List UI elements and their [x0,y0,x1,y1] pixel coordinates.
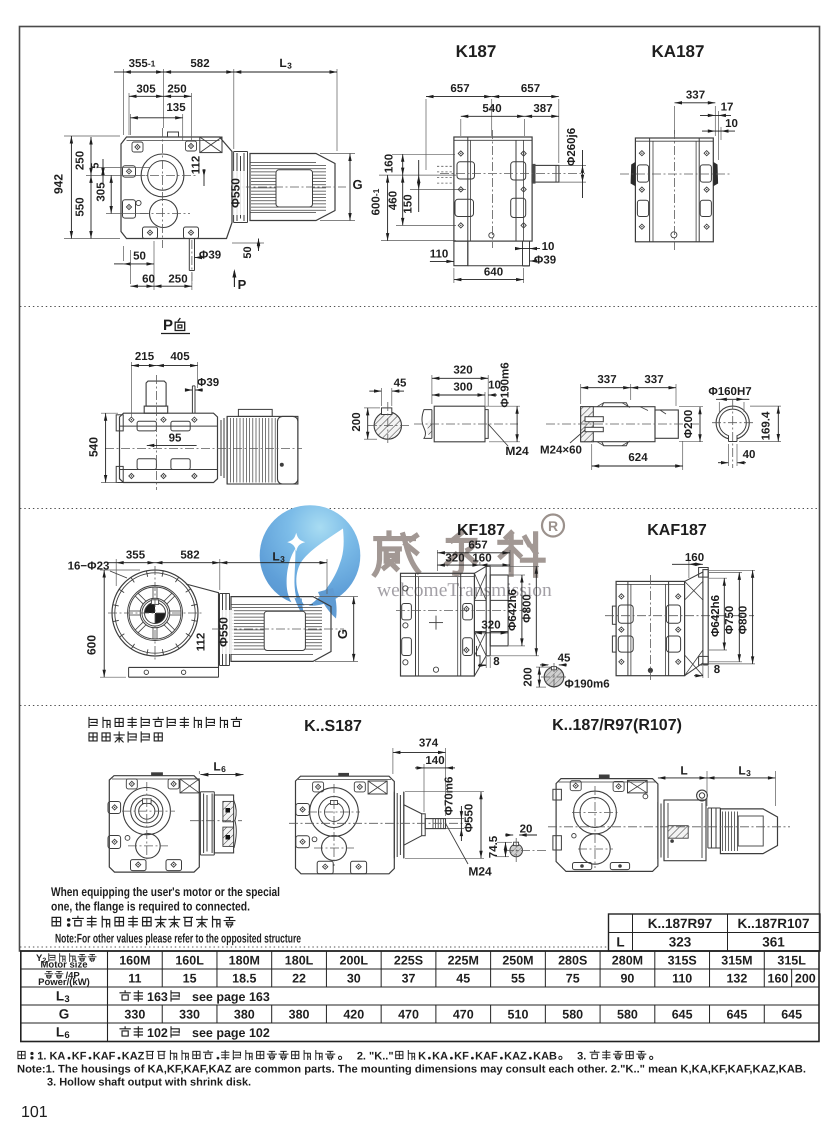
svg-text:11: 11 [128,972,141,986]
svg-text:see page 102: see page 102 [192,1026,270,1040]
svg-text:102: 102 [147,1026,168,1040]
svg-text:8: 8 [714,664,721,676]
svg-text:KAF187: KAF187 [647,522,707,539]
svg-text:Power/(kW): Power/(kW) [38,977,90,988]
svg-text:215: 215 [135,351,155,363]
svg-text:657: 657 [468,540,487,552]
svg-text:K187: K187 [456,42,497,61]
svg-text:135: 135 [166,102,186,114]
svg-text:Φ39: Φ39 [197,377,219,389]
svg-text:200: 200 [351,412,363,431]
svg-text:one, the flange is required to: one, the flange is required to connected… [51,900,250,914]
svg-text:Φ750: Φ750 [724,606,736,635]
svg-text:K..187R97: K..187R97 [648,916,713,931]
svg-text:KAB: KAB [533,1051,557,1063]
svg-text:3. Hollow shaft output with sh: 3. Hollow shaft output with shrink disk. [47,1077,251,1089]
svg-text:580: 580 [562,1008,583,1022]
svg-text:Φ550: Φ550 [464,804,476,833]
svg-text:160M: 160M [119,954,150,968]
svg-text:90: 90 [620,972,634,986]
svg-text:355: 355 [126,550,146,562]
svg-text:Motor size: Motor size [41,960,88,971]
svg-text:KF: KF [454,1051,469,1063]
svg-text:KF187: KF187 [457,522,505,539]
svg-text:Φ260j6: Φ260j6 [566,128,578,166]
svg-text:K: K [418,1051,426,1063]
svg-text:225M: 225M [448,954,479,968]
svg-text:580: 580 [617,1008,638,1022]
svg-text:Φ550: Φ550 [229,178,243,208]
svg-text:645: 645 [672,1008,693,1022]
svg-text:75: 75 [566,972,580,986]
svg-text:45: 45 [394,378,407,390]
svg-text:550: 550 [75,197,87,216]
svg-text:250: 250 [167,84,186,96]
svg-text:160: 160 [472,553,491,565]
svg-text:330: 330 [179,1008,200,1022]
svg-text:L: L [616,935,624,950]
svg-text:6: 6 [221,764,226,774]
svg-text:M24: M24 [468,865,492,879]
svg-text:942: 942 [52,174,66,194]
svg-text:KAF: KAF [93,1051,116,1063]
svg-text:K..187/R97(R107): K..187/R97(R107) [552,717,682,734]
svg-text:323: 323 [669,935,692,950]
svg-text:KF: KF [72,1051,87,1063]
svg-text:10: 10 [542,241,555,253]
svg-text:150: 150 [403,194,415,213]
svg-text:L: L [680,764,687,778]
svg-text:Note:For other values please r: Note:For other values please refer to th… [55,932,301,946]
svg-text:G: G [352,177,362,192]
svg-text:180M: 180M [229,954,260,968]
svg-text:Φ39: Φ39 [534,255,556,267]
svg-text:355-1: 355-1 [129,58,156,70]
svg-text:582: 582 [180,550,199,562]
svg-text:305: 305 [96,182,108,202]
svg-text:45: 45 [456,972,470,986]
svg-text:380: 380 [289,1008,310,1022]
svg-text:640: 640 [484,267,503,279]
svg-text:330: 330 [124,1008,145,1022]
svg-text:KAF: KAF [475,1051,498,1063]
svg-text:74.5: 74.5 [488,835,500,858]
svg-text:320: 320 [445,553,464,565]
svg-text:2. "K..": 2. "K.." [357,1051,394,1063]
svg-text:420: 420 [343,1008,364,1022]
svg-text:110: 110 [430,249,449,261]
svg-text:16−Φ23: 16−Φ23 [68,561,110,573]
svg-text:361: 361 [762,935,785,950]
svg-text:see page 163: see page 163 [192,990,270,1004]
svg-text:600: 600 [85,635,99,655]
svg-text:160: 160 [384,154,396,173]
svg-text:200: 200 [523,667,535,686]
svg-text:337: 337 [686,90,705,102]
svg-text:L: L [56,989,64,1004]
svg-text:K..S187: K..S187 [304,718,362,735]
svg-text:3: 3 [280,554,285,564]
svg-text:337: 337 [644,374,663,386]
svg-text:37: 37 [402,972,416,986]
svg-text:163: 163 [147,990,168,1004]
svg-text:645: 645 [781,1008,802,1022]
svg-text:320: 320 [453,365,472,377]
svg-text:200L: 200L [340,954,369,968]
svg-text:Φ190m6: Φ190m6 [564,679,609,691]
svg-text:160L: 160L [175,954,204,968]
svg-text:582: 582 [190,58,209,70]
svg-text:225S: 225S [394,954,423,968]
svg-text:Φ800: Φ800 [738,606,750,635]
svg-text:50: 50 [133,251,146,263]
svg-text:Φ550: Φ550 [217,617,231,647]
svg-text:Φ39: Φ39 [199,250,221,262]
svg-text:Φ642h6: Φ642h6 [710,595,722,637]
svg-text:3: 3 [746,768,751,778]
svg-text:Φ160H7: Φ160H7 [708,386,751,398]
svg-text:112: 112 [191,156,203,175]
svg-text:18.5: 18.5 [232,972,256,986]
svg-text:510: 510 [508,1008,529,1022]
svg-text:G: G [59,1007,70,1022]
svg-text:P: P [163,317,173,334]
svg-text:60: 60 [142,274,155,286]
svg-text:45: 45 [558,653,571,665]
svg-text:Φ190m6: Φ190m6 [500,362,512,407]
svg-text:250M: 250M [502,954,533,968]
svg-text:40: 40 [743,449,756,461]
svg-text:30: 30 [347,972,361,986]
svg-text:M24: M24 [505,444,529,458]
svg-text:315L: 315L [777,954,806,968]
svg-text:169.4: 169.4 [761,411,773,440]
svg-text:L: L [213,760,220,774]
svg-text:Φ800: Φ800 [522,594,534,623]
svg-text:110: 110 [672,972,692,986]
svg-text:101: 101 [21,1104,48,1121]
svg-text:KA: KA [432,1051,448,1063]
svg-text:460: 460 [388,191,400,210]
svg-text:L: L [272,550,279,564]
svg-text:L: L [279,56,286,70]
svg-text:R: R [548,518,558,534]
svg-text:15: 15 [183,972,197,986]
svg-text:250: 250 [75,151,87,170]
svg-text:1. KA: 1. KA [37,1051,65,1063]
svg-text:305: 305 [136,84,156,96]
svg-text:3.: 3. [577,1051,586,1063]
svg-text:3: 3 [64,994,69,1005]
svg-text:540: 540 [87,437,101,457]
svg-text:540: 540 [482,103,501,115]
svg-text:600-1: 600-1 [371,188,383,215]
svg-text:KA187: KA187 [652,42,705,61]
svg-text:55: 55 [511,972,525,986]
svg-text:140: 140 [425,755,444,767]
svg-text:160: 160 [685,552,704,564]
svg-text:380: 380 [234,1008,255,1022]
svg-text:Φ642h6: Φ642h6 [507,589,519,631]
svg-text:K..187R107: K..187R107 [737,916,809,931]
svg-text:374: 374 [419,738,439,750]
svg-text:112: 112 [196,633,208,652]
svg-text:6: 6 [64,1030,69,1041]
svg-text:L: L [738,764,745,778]
svg-text:Note:1. The housings of KA,KF,: Note:1. The housings of KA,KF,KAF,KAZ ar… [17,1064,806,1076]
svg-text:470: 470 [398,1008,419,1022]
svg-text:387: 387 [533,103,552,115]
svg-text:624: 624 [628,452,648,464]
svg-text:405: 405 [170,351,190,363]
svg-text:657: 657 [521,83,540,95]
svg-text:3: 3 [287,61,292,71]
svg-text:KAZ: KAZ [504,1051,527,1063]
svg-text:Φ200: Φ200 [683,410,695,439]
svg-text:300: 300 [453,382,472,394]
svg-text:315S: 315S [668,954,697,968]
svg-text:22: 22 [292,972,306,986]
svg-text:5: 5 [90,162,102,168]
svg-text:657: 657 [450,83,469,95]
svg-text:250: 250 [168,274,187,286]
svg-text:50: 50 [242,246,254,258]
svg-text:280S: 280S [558,954,587,968]
svg-text:G: G [335,629,350,639]
svg-text:L: L [56,1025,64,1040]
svg-text:KAZ: KAZ [122,1051,145,1063]
svg-text:8: 8 [493,656,500,668]
svg-text:Φ70m6: Φ70m6 [444,777,456,816]
svg-text:280M: 280M [612,954,643,968]
svg-text:315M: 315M [721,954,752,968]
svg-text:180L: 180L [285,954,314,968]
svg-text:320: 320 [481,620,500,632]
svg-text:645: 645 [726,1008,747,1022]
svg-text:132: 132 [726,972,747,986]
svg-text:M24×60: M24×60 [540,445,582,457]
svg-text:17: 17 [721,102,734,114]
svg-text:200: 200 [795,972,816,986]
svg-text:337: 337 [597,374,616,386]
svg-text:470: 470 [453,1008,474,1022]
svg-text:160: 160 [768,972,789,986]
svg-text:10: 10 [725,118,738,130]
svg-text:P: P [238,277,247,292]
svg-text:When equipping the user's moto: When equipping the user's motor or the s… [51,885,280,899]
svg-text:95: 95 [169,433,182,445]
